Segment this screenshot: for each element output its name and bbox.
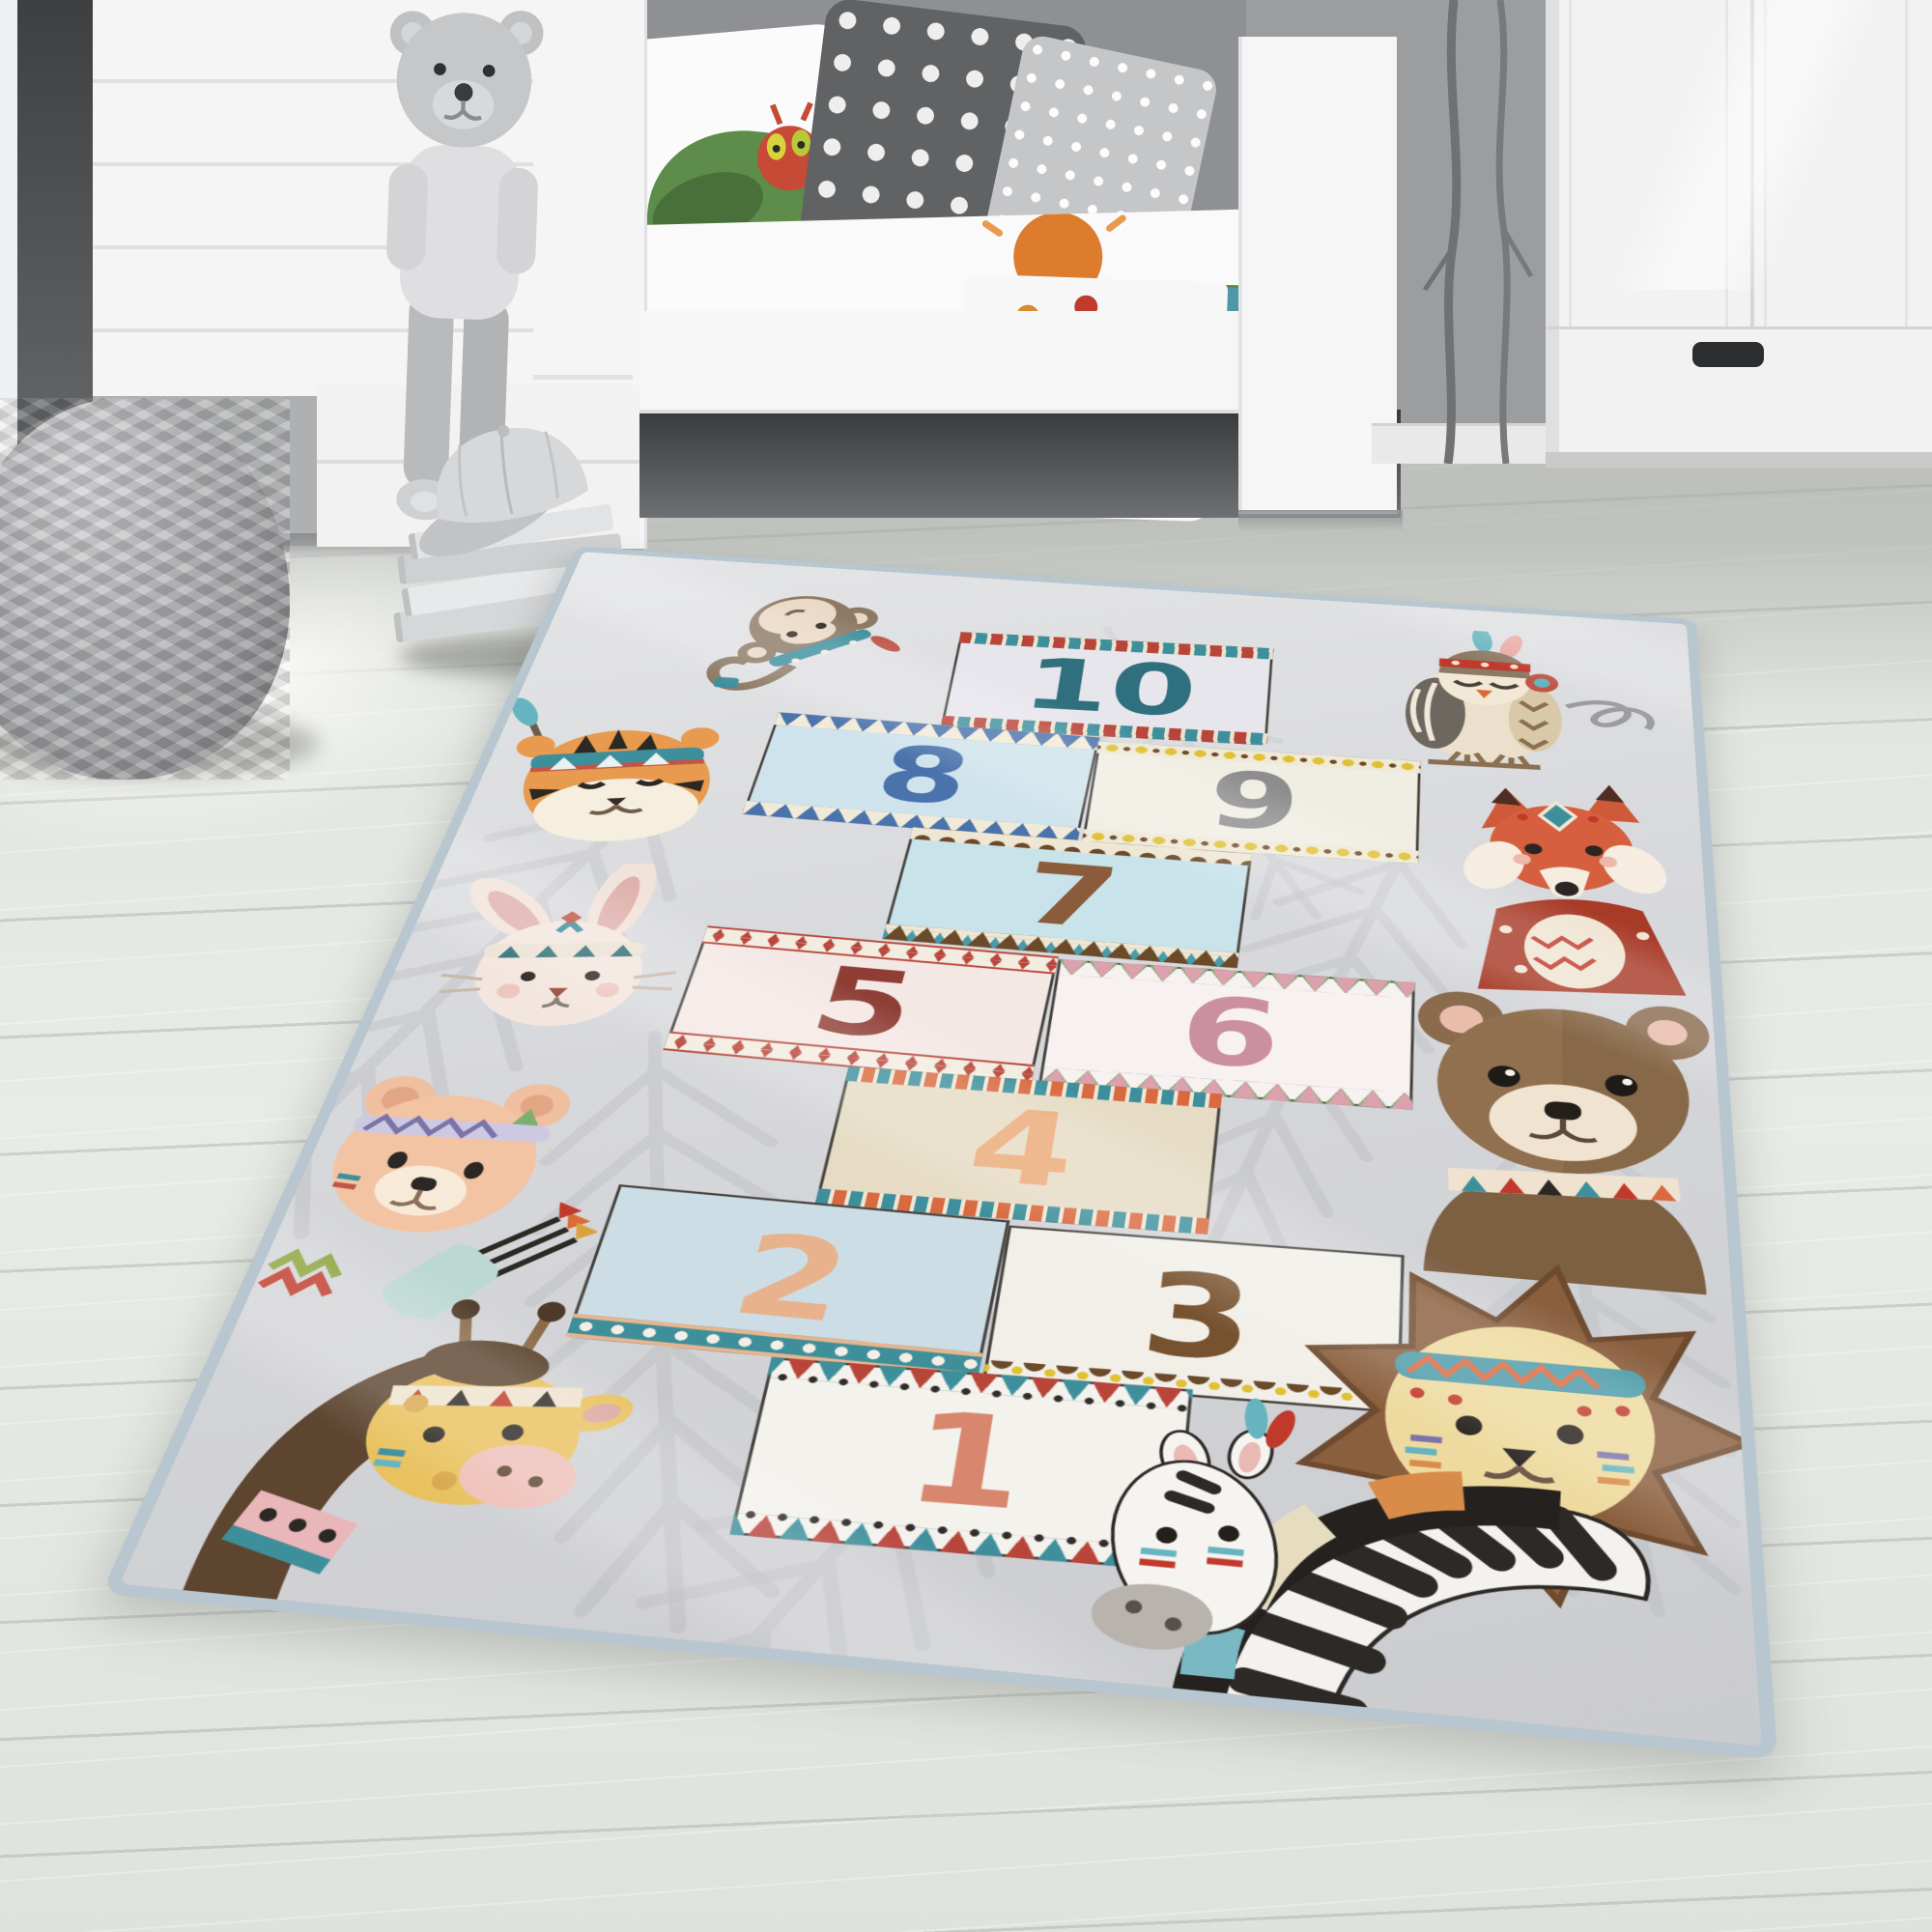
scene-kids-room: 10 8 9 7 5 [0, 0, 1932, 1932]
branches-art [1377, 0, 1560, 464]
wardrobe-drawer-line [1546, 327, 1932, 329]
bed-side-rail [633, 311, 1309, 413]
wardrobe-drawer-handle[interactable] [1692, 342, 1764, 367]
knitted-pouf [0, 398, 290, 780]
pouf-knit-texture [0, 398, 290, 780]
bed-leg-shadow [1238, 510, 1403, 531]
teddy-head [386, 6, 544, 150]
wardrobe-light-streak [1584, 0, 1932, 290]
wardrobe [1546, 0, 1932, 468]
decor-branches [1377, 0, 1560, 464]
wardrobe-base [1546, 452, 1932, 468]
wardrobe-shade [1546, 0, 1559, 468]
pouf-body [0, 398, 290, 780]
wardrobe-panel-groove [1569, 0, 1572, 327]
